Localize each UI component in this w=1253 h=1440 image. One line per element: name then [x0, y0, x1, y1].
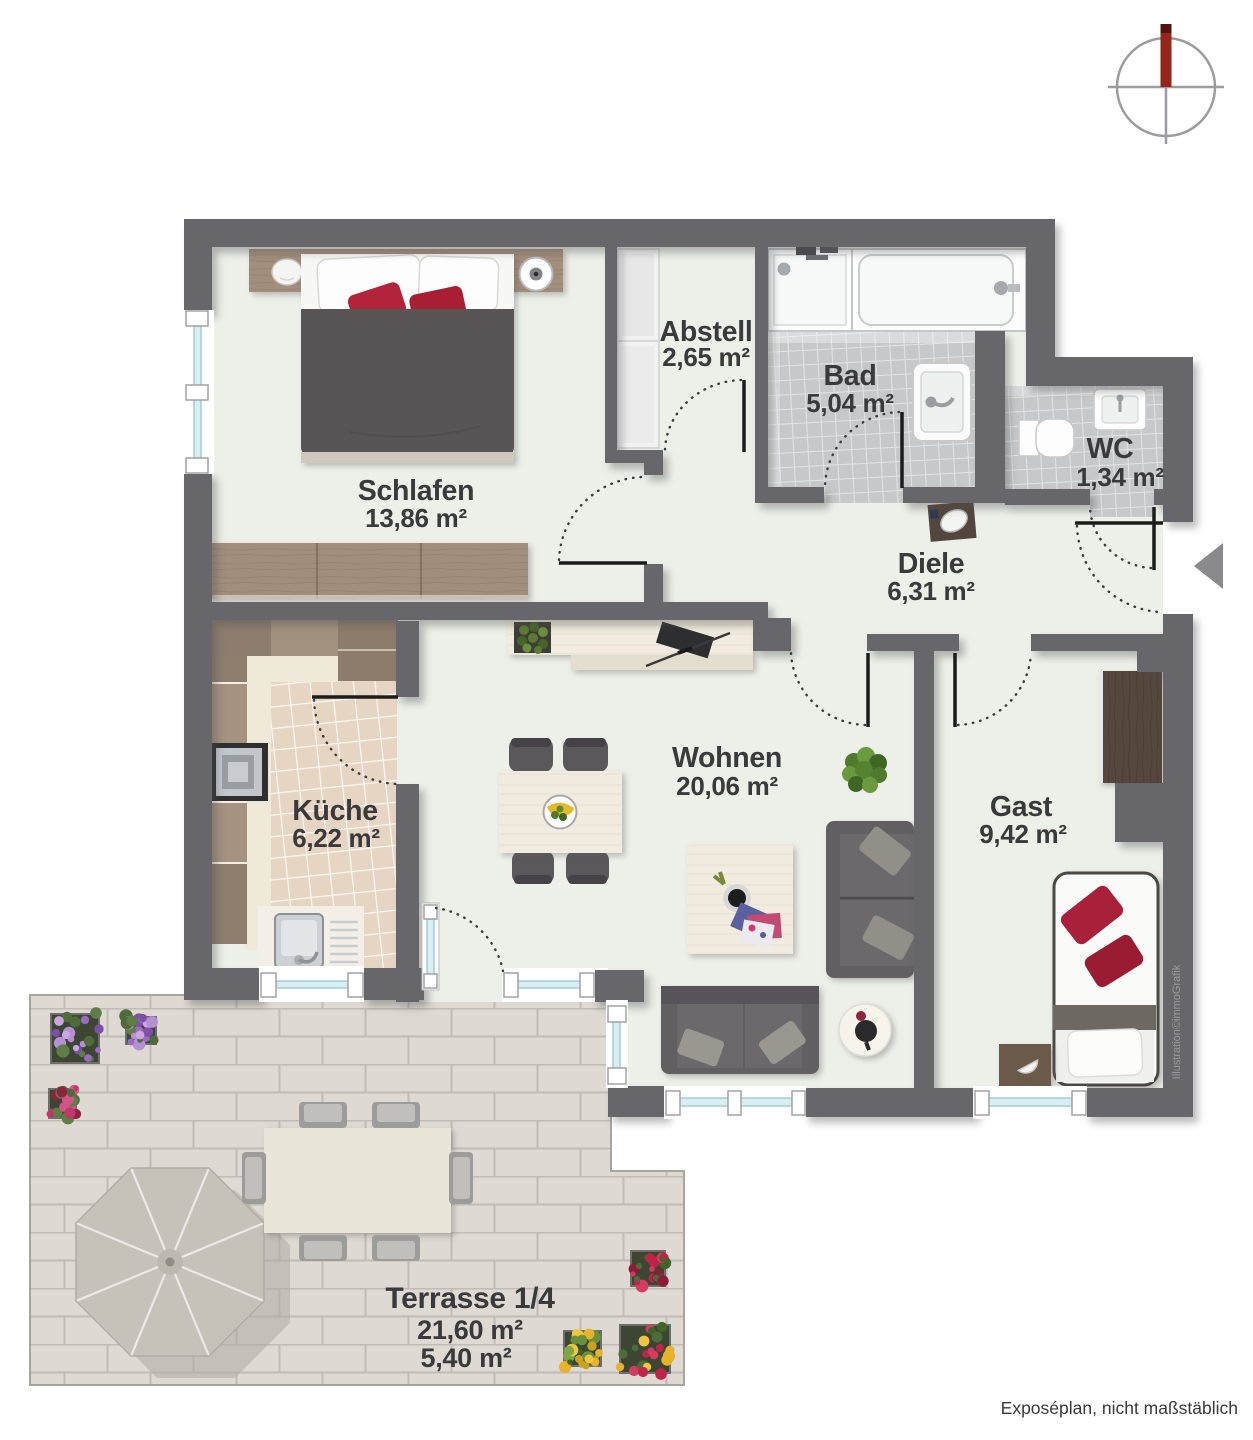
svg-text:6,22 m²: 6,22 m² [292, 823, 380, 853]
svg-text:Wohnen: Wohnen [672, 742, 782, 774]
svg-text:6,31 m²: 6,31 m² [887, 576, 975, 606]
svg-text:Terrasse 1/4: Terrasse 1/4 [385, 1282, 555, 1315]
svg-text:13,86 m²: 13,86 m² [365, 503, 467, 533]
svg-text:9,42 m²: 9,42 m² [979, 819, 1067, 849]
svg-text:20,06 m²: 20,06 m² [676, 771, 778, 801]
svg-text:5,40 m²: 5,40 m² [421, 1343, 512, 1373]
svg-text:5,04 m²: 5,04 m² [806, 388, 894, 418]
svg-text:Illustration©immoGrafik: Illustration©immoGrafik [1171, 964, 1183, 1079]
svg-text:21,60 m²: 21,60 m² [417, 1315, 523, 1345]
svg-text:Exposéplan, nicht maßstäblich: Exposéplan, nicht maßstäblich [1001, 1398, 1238, 1418]
svg-text:WC: WC [1087, 433, 1134, 465]
svg-text:1,34 m²: 1,34 m² [1076, 462, 1164, 492]
svg-text:2,65 m²: 2,65 m² [662, 342, 750, 372]
